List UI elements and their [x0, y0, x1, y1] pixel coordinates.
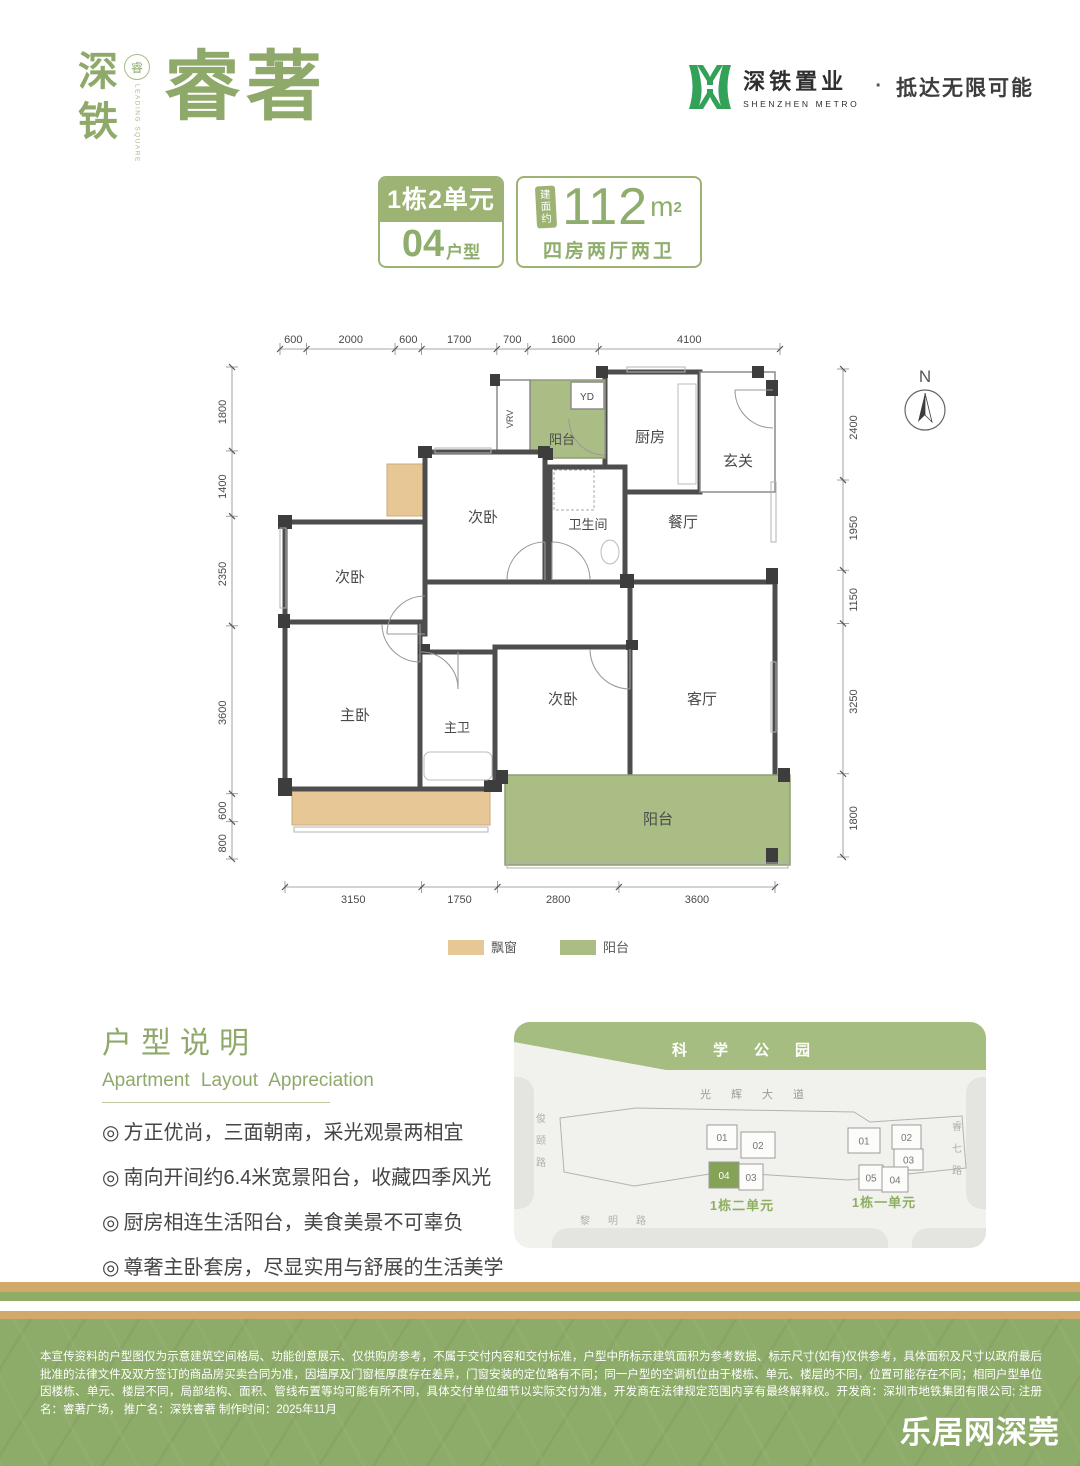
bay-window — [387, 464, 427, 516]
room-label: 餐厅 — [668, 514, 698, 531]
watermark-text: 乐居网深莞 — [900, 1407, 1060, 1452]
park-label: 科学公园 — [672, 1041, 836, 1059]
room-label: YD — [580, 392, 594, 403]
road-shape — [966, 1077, 986, 1209]
room-label: 次卧 — [335, 569, 365, 586]
unit-suffix: 户型 — [446, 238, 480, 263]
wall-column — [278, 778, 292, 796]
dimension-value: 600 — [284, 334, 302, 346]
area-number: 112 — [562, 181, 648, 233]
bullet-text: 方正优尚，三面朝南，采光观景两相宜 — [123, 1123, 463, 1143]
brand-names: 深铁置业 SHENZHEN METRO — [743, 64, 859, 109]
unit-title-badges: 1栋2单元 04 户型 建面约 112 m 2 四房两厅两卫 — [378, 176, 702, 268]
logo-main-text: 睿著 — [164, 50, 328, 126]
seal-caption: LEADING SQUARE — [134, 84, 141, 163]
room-label: 阳台 — [549, 432, 575, 447]
room-label: 厨房 — [635, 429, 665, 446]
block-unit-badge: 1栋2单元 04 户型 — [378, 176, 504, 268]
description-divider — [102, 1102, 330, 1103]
dimension-value: 1150 — [848, 588, 860, 612]
dimension-value: 1800 — [848, 806, 860, 830]
wall-column — [543, 448, 553, 460]
bullet-text: 南向开间约6.4米宽景阳台，收藏四季风光 — [123, 1168, 491, 1188]
wall-column — [490, 374, 500, 386]
road-shape — [514, 1077, 534, 1209]
layout-description-section: 户型说明 Apartment Layout Appreciation ◎方正优尚… — [102, 1018, 532, 1303]
dimension-value: 1700 — [447, 334, 471, 346]
dimension-value: 1800 — [217, 400, 229, 424]
developer-brand: 深铁置业 SHENZHEN METRO · 抵达无限可能 — [687, 64, 1034, 109]
brand-name-en: SHENZHEN METRO — [743, 99, 859, 109]
room-label: 客厅 — [687, 691, 717, 708]
wall-column — [418, 446, 432, 458]
wall-column — [766, 568, 778, 584]
compass-north-label: N — [919, 367, 931, 386]
wall-column — [596, 366, 608, 378]
room-outline — [630, 582, 775, 789]
dimension-value: 2000 — [339, 334, 363, 346]
footer-band: 本宣传资料的户型图仅为示意建筑空间格局、功能创意展示、仅供购房参考，不属于交付内… — [0, 1319, 1080, 1466]
description-title-cn: 户型说明 — [102, 1018, 532, 1062]
dimension-value: 600 — [217, 802, 229, 820]
window-glazing — [294, 827, 488, 832]
logo-seal: 睿 LEADING SQUARE — [124, 54, 150, 163]
legend-swatch — [560, 940, 596, 955]
rooms-description: 四房两厅两卫 — [543, 236, 675, 263]
site-building-number: 01 — [716, 1133, 728, 1144]
brand-name-cn: 深铁置业 — [743, 64, 859, 96]
dimension-value: 800 — [217, 834, 229, 852]
floorplan-diagram: 厨房玄关阳台YDVRV次卧卫生间餐厅次卧主卧主卫次卧客厅阳台6002000600… — [180, 322, 960, 982]
project-logo: 深铁 睿 LEADING SQUARE 睿著 — [74, 50, 328, 163]
wall-column — [778, 768, 790, 782]
room-outline — [495, 647, 630, 777]
description-title-en: Apartment Layout Appreciation — [102, 1070, 532, 1092]
bullet-text: 厨房相连生活阳台，美食美景不可辜负 — [123, 1213, 463, 1233]
metro-logo-icon — [687, 65, 733, 109]
compass-needle-dark — [918, 393, 925, 422]
dimension-value: 2800 — [546, 894, 570, 906]
bullet-marker: ◎ — [102, 1258, 119, 1278]
site-building-number: 01 — [858, 1137, 870, 1148]
cluster-label: 1栋二单元 — [710, 1198, 774, 1213]
bullet-item: ◎尊奢主卧套房，尽显实用与舒展的生活美学 — [102, 1258, 532, 1278]
road-left-label: 俊颐路 — [536, 1112, 546, 1169]
room-label: 次卧 — [468, 509, 498, 526]
stripe-tan-1 — [0, 1282, 1080, 1292]
bullet-item: ◎厨房相连生活阳台，美食美景不可辜负 — [102, 1213, 532, 1233]
room-label: 主卫 — [444, 720, 470, 735]
brand-tagline: 抵达无限可能 — [896, 72, 1034, 102]
room-label: 卫生间 — [568, 517, 607, 532]
dimension-value: 3600 — [685, 894, 709, 906]
wall-column — [766, 848, 778, 864]
road-shape — [552, 1228, 888, 1248]
room-label: 主卧 — [340, 707, 370, 724]
dimension-value: 1750 — [447, 894, 471, 906]
dimension-value: 3250 — [848, 689, 860, 713]
logo-vertical-text: 深铁 — [74, 50, 114, 150]
wall-column — [620, 574, 634, 588]
road-bottom-label: 黎明路 — [580, 1214, 664, 1227]
bullet-marker: ◎ — [102, 1168, 119, 1188]
legal-disclaimer: 本宣传资料的户型图仅为示意建筑空间格局、功能创意展示、仅供购房参考，不属于交付内… — [40, 1349, 1042, 1419]
bay-window — [292, 791, 490, 825]
road-top-label: 光辉大道 — [700, 1087, 824, 1101]
cluster-label: 1栋一单元 — [852, 1195, 916, 1210]
dimension-value: 3150 — [341, 894, 365, 906]
room-label: VRV — [505, 410, 515, 428]
brand-separator-dot: · — [875, 75, 882, 98]
compass-needle-light — [925, 393, 932, 422]
area-approx-tag: 建面约 — [535, 185, 557, 228]
wall-column — [496, 770, 508, 784]
legend-label: 阳台 — [603, 940, 629, 955]
sitemap-group: 科学公园光辉大道010204031栋二单元01020305041栋一单元俊颐路睿… — [514, 1022, 986, 1248]
dimension-value: 4100 — [677, 334, 701, 346]
site-building-number: 04 — [889, 1176, 901, 1187]
dimension-value: 1600 — [551, 334, 575, 346]
room-label: 阳台 — [643, 811, 673, 828]
room-label: 次卧 — [548, 691, 578, 708]
dimension-value: 700 — [503, 334, 521, 346]
road-shape — [912, 1228, 986, 1248]
stripe-tan-2 — [0, 1311, 1080, 1319]
block-unit-label: 1栋2单元 — [380, 178, 502, 222]
poster-page: 深铁 睿 LEADING SQUARE 睿著 深铁置业 SHENZHEN MET… — [0, 0, 1080, 1466]
wall-column — [752, 366, 764, 378]
bullet-item: ◎南向开间约6.4米宽景阳台，收藏四季风光 — [102, 1168, 532, 1188]
site-building-number: 03 — [745, 1173, 757, 1184]
bullet-item: ◎方正优尚，三面朝南，采光观景两相宜 — [102, 1123, 532, 1143]
seal-icon: 睿 — [124, 54, 150, 80]
room-label: 玄关 — [723, 453, 753, 470]
area-unit: m — [650, 191, 673, 223]
road-right-label: 睿七路 — [952, 1120, 962, 1177]
legend-label: 飘窗 — [491, 940, 517, 955]
bullet-marker: ◎ — [102, 1213, 119, 1233]
site-location-map: 科学公园光辉大道010204031栋二单元01020305041栋一单元俊颐路睿… — [514, 1022, 986, 1248]
wall-column — [626, 640, 638, 650]
wall-column — [278, 515, 292, 529]
description-bullets: ◎方正优尚，三面朝南，采光观景两相宜 ◎南向开间约6.4米宽景阳台，收藏四季风光… — [102, 1123, 532, 1278]
unit-number: 04 — [402, 225, 444, 263]
dimension-value: 600 — [399, 334, 417, 346]
dimension-value: 1400 — [217, 474, 229, 498]
wall-column — [766, 380, 778, 396]
site-building-number: 04 — [718, 1171, 730, 1182]
area-badge: 建面约 112 m 2 四房两厅两卫 — [516, 176, 702, 268]
dimension-value: 1950 — [848, 516, 860, 540]
stripe-white-1 — [0, 1301, 1080, 1311]
area-row: 建面约 112 m 2 — [536, 181, 682, 233]
bullet-text: 尊奢主卧套房，尽显实用与舒展的生活美学 — [123, 1258, 503, 1278]
area-superscript: 2 — [673, 199, 681, 216]
wall-column — [278, 614, 290, 628]
stripe-green-1 — [0, 1292, 1080, 1301]
site-building-number: 02 — [752, 1141, 764, 1152]
dimension-value: 2350 — [217, 562, 229, 586]
dimension-value: 3600 — [217, 701, 229, 725]
bullet-marker: ◎ — [102, 1123, 119, 1143]
room-outline — [285, 622, 420, 789]
dimension-value: 2400 — [848, 415, 860, 439]
legend-swatch — [448, 940, 484, 955]
site-building-number: 05 — [865, 1174, 877, 1185]
unit-type: 04 户型 — [380, 222, 502, 266]
site-building-number: 02 — [901, 1133, 913, 1144]
site-building-number: 03 — [903, 1156, 915, 1167]
